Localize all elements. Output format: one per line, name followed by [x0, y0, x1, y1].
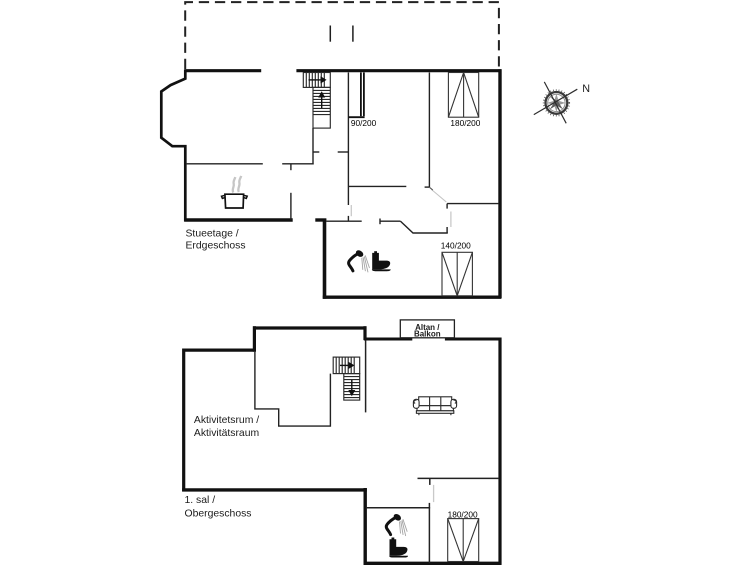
- svg-text:Obergeschoss: Obergeschoss: [185, 508, 252, 519]
- svg-text:Aktivitätsraum: Aktivitätsraum: [194, 428, 259, 439]
- svg-text:Erdgeschoss: Erdgeschoss: [186, 241, 246, 252]
- svg-text:N: N: [582, 83, 590, 95]
- svg-text:90/200: 90/200: [351, 118, 377, 128]
- svg-text:Stueetage /: Stueetage /: [186, 229, 239, 240]
- svg-text:140/200: 140/200: [441, 241, 471, 251]
- svg-text:Aktivitetsrum /: Aktivitetsrum /: [194, 415, 259, 426]
- svg-text:180/200: 180/200: [450, 118, 480, 128]
- svg-text:Balkon: Balkon: [414, 330, 441, 339]
- svg-text:1. sal /: 1. sal /: [185, 495, 216, 506]
- svg-text:180/200: 180/200: [448, 509, 478, 519]
